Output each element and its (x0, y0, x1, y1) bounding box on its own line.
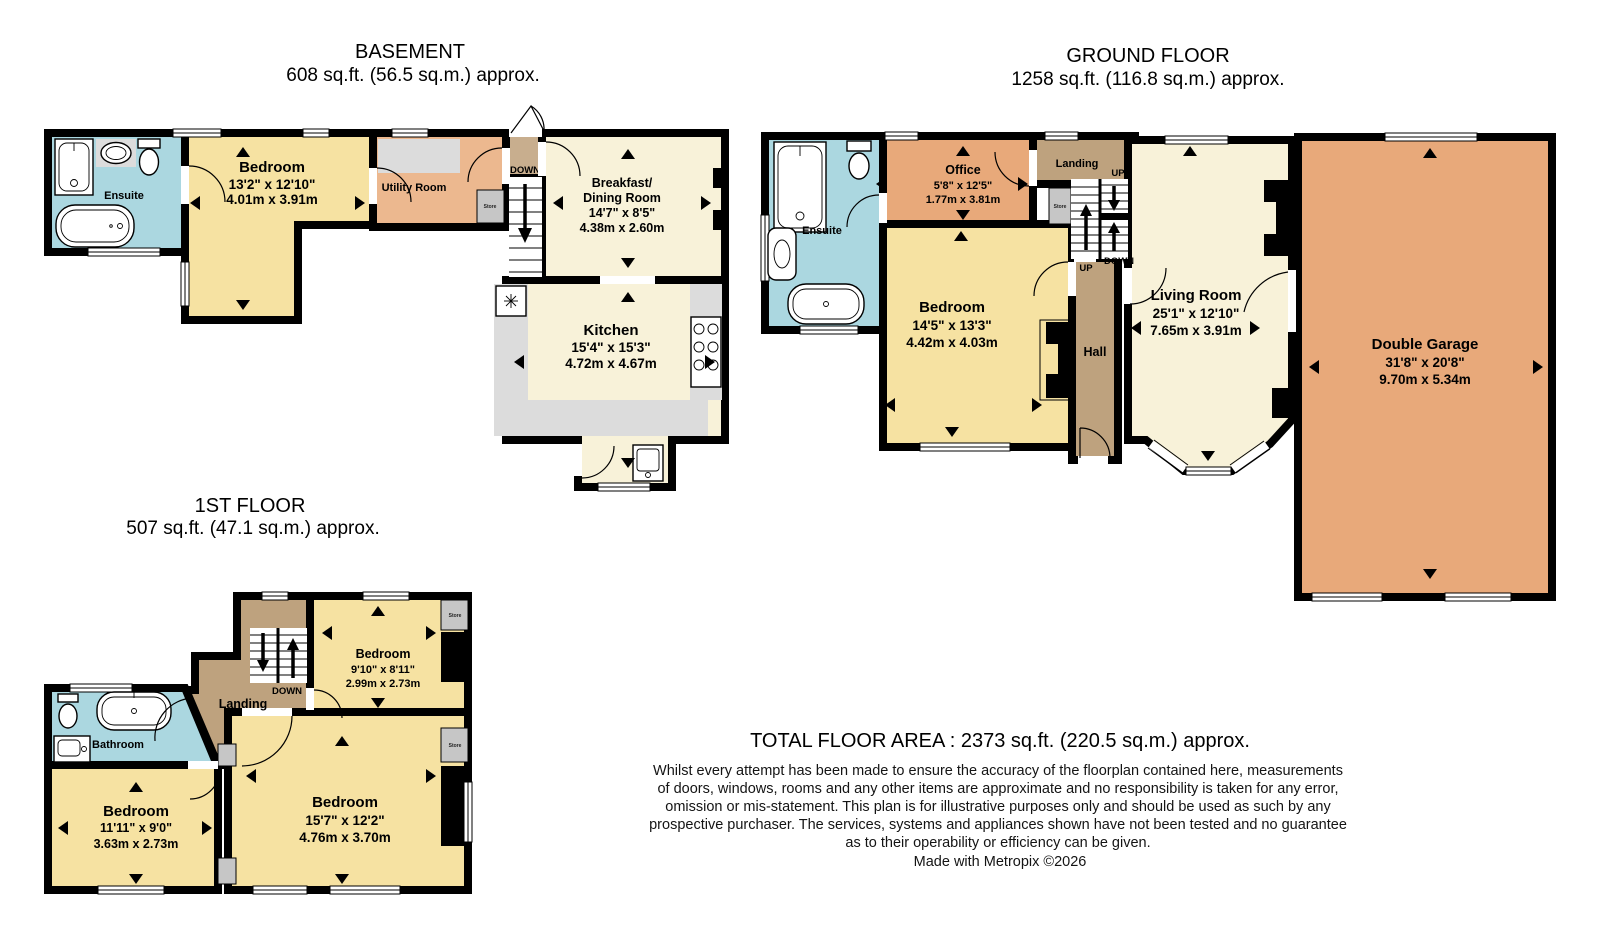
basement-shower-icon (55, 139, 93, 195)
gf-shower-icon (774, 142, 826, 232)
floorplan-page: BASEMENT 608 sq.ft. (56.5 sq.m.) approx.… (0, 0, 1600, 947)
1f-bedroom-left-imperial: 11'11" x 9'0" (100, 821, 172, 835)
basement-bathtub-icon (56, 205, 134, 247)
gf-up-bottom-label: UP (1079, 263, 1093, 274)
1f-bedroom-big-name: Bedroom (312, 794, 378, 811)
ground-floor-title: GROUND FLOOR (1066, 45, 1229, 67)
basement-sink-icon (96, 139, 136, 167)
1f-cupboard-upper (218, 744, 236, 766)
gf-sink-icon (768, 228, 796, 280)
first-floor-title: 1ST FLOOR (195, 495, 306, 517)
1f-chimney-top (441, 632, 468, 682)
basement-bedroom-metric: 4.01m x 3.91m (226, 192, 318, 207)
kitchen-name: Kitchen (583, 322, 638, 339)
1f-bathtub-icon (97, 692, 171, 730)
1f-bedroom-left-metric: 3.63m x 2.73m (94, 837, 179, 851)
breakfast-name-1: Breakfast/ (592, 176, 653, 190)
disclaimer-line-2: of doors, windows, rooms and any other i… (657, 781, 1338, 797)
gf-bedroom-metric: 4.42m x 4.03m (906, 335, 998, 350)
disclaimer-line-4: prospective purchaser. The services, sys… (649, 817, 1347, 833)
first-floor-area: 507 sq.ft. (47.1 sq.m.) approx. (126, 518, 379, 539)
kitchen-sink-icon (633, 445, 663, 481)
1f-bedroom-big-metric: 4.76m x 3.70m (299, 830, 391, 845)
1f-toilet-icon (58, 694, 78, 728)
gf-garage-imperial: 31'8" x 20'8" (1385, 355, 1464, 370)
gf-up-top-label: UP (1111, 168, 1125, 179)
utility-counter (378, 139, 460, 173)
1f-chimney-right (441, 766, 465, 846)
breakfast-imperial: 14'7" x 8'5" (589, 206, 656, 220)
1f-bedroom-small-metric: 2.99m x 2.73m (346, 678, 421, 690)
1f-bathroom-label: Bathroom (92, 739, 144, 751)
ground-floor-area: 1258 sq.ft. (116.8 sq.m.) approx. (1011, 69, 1284, 90)
basement-area: 608 sq.ft. (56.5 sq.m.) approx. (286, 65, 539, 86)
1f-store-right-label: Store (449, 743, 462, 749)
1f-landing-label: Landing (219, 697, 268, 711)
gf-garage-name: Double Garage (1372, 336, 1479, 353)
gf-office-imperial: 5'8" x 12'5" (934, 180, 992, 192)
disclaimer-line-5: as to their operability or efficiency ca… (845, 835, 1150, 851)
gf-hall-label: Hall (1084, 345, 1107, 359)
1f-cupboard-lower (218, 858, 236, 884)
gf-store-label: Store (1054, 204, 1067, 210)
first-floor-plan: 1ST FLOOR 507 sq.ft. (47.1 sq.m.) approx… (48, 495, 472, 894)
kitchen-metric: 4.72m x 4.67m (565, 356, 657, 371)
floorplan-canvas: BASEMENT 608 sq.ft. (56.5 sq.m.) approx.… (0, 0, 1600, 947)
kitchen-counter-bottom (494, 400, 708, 436)
1f-store-top-label: Store (449, 613, 462, 619)
gf-living-imperial: 25'1" x 12'10" (1153, 306, 1240, 321)
1f-sink-icon (54, 736, 90, 762)
breakfast-name-2: Dining Room (583, 191, 661, 205)
freezer-icon (496, 286, 526, 316)
1f-down-label: DOWN (272, 686, 302, 697)
basement-entry-door-arc (511, 106, 544, 133)
gf-garage-metric: 9.70m x 5.34m (1379, 372, 1471, 387)
basement-toilet-icon (138, 139, 160, 175)
basement-entry-opening (509, 129, 542, 137)
gf-landing-label: Landing (1056, 158, 1099, 170)
gf-living-name: Living Room (1151, 287, 1242, 304)
disclaimer-line-3: omission or mis-statement. This plan is … (665, 799, 1331, 815)
gf-living-metric: 7.65m x 3.91m (1150, 323, 1242, 338)
footer-text: TOTAL FLOOR AREA : 2373 sq.ft. (220.5 sq… (649, 730, 1347, 870)
1f-bedroom-small-imperial: 9'10" x 8'11" (351, 664, 415, 676)
gf-stair-mid-landing (1100, 213, 1128, 220)
total-floor-area: TOTAL FLOOR AREA : 2373 sq.ft. (220.5 sq… (750, 730, 1250, 752)
breakfast-metric: 4.38m x 2.60m (580, 221, 665, 235)
basement-store-label: Store (484, 204, 497, 210)
basement-utility-label: Utility Room (382, 182, 447, 194)
1f-bedroom-big-imperial: 15'7" x 12'2" (305, 813, 384, 828)
gf-ensuite-label: Ensuite (802, 225, 842, 237)
kitchen-imperial: 15'4" x 15'3" (571, 340, 650, 355)
breakfast-chimney-lower (713, 210, 725, 230)
basement-plan: BASEMENT 608 sq.ft. (56.5 sq.m.) approx.… (48, 41, 725, 491)
basement-down-label: DOWN (510, 165, 540, 176)
room-gf-hall (1072, 258, 1118, 460)
basement-ensuite-label: Ensuite (104, 190, 144, 202)
1f-bedroom-small-name: Bedroom (356, 647, 411, 661)
gf-down-label: DOWN (1104, 256, 1134, 267)
credit-line: Made with Metropix ©2026 (914, 854, 1087, 870)
disclaimer-line-1: Whilst every attempt has been made to en… (653, 763, 1343, 779)
basement-title: BASEMENT (355, 41, 465, 63)
gf-office-name: Office (945, 163, 980, 177)
gf-bedroom-imperial: 14'5" x 13'3" (912, 318, 991, 333)
stove-icon (691, 317, 721, 387)
gf-bedroom-name: Bedroom (919, 299, 985, 316)
breakfast-chimney-upper (713, 168, 725, 188)
basement-bedroom-imperial: 13'2" x 12'10" (229, 177, 316, 192)
ground-floor-plan: GROUND FLOOR 1258 sq.ft. (116.8 sq.m.) a… (761, 45, 1552, 601)
gf-toilet-icon (847, 141, 871, 179)
1f-bedroom-left-name: Bedroom (103, 803, 169, 820)
gf-office-metric: 1.77m x 3.81m (926, 194, 1001, 206)
basement-bedroom-name: Bedroom (239, 159, 305, 176)
gf-bathtub-icon (788, 284, 864, 324)
